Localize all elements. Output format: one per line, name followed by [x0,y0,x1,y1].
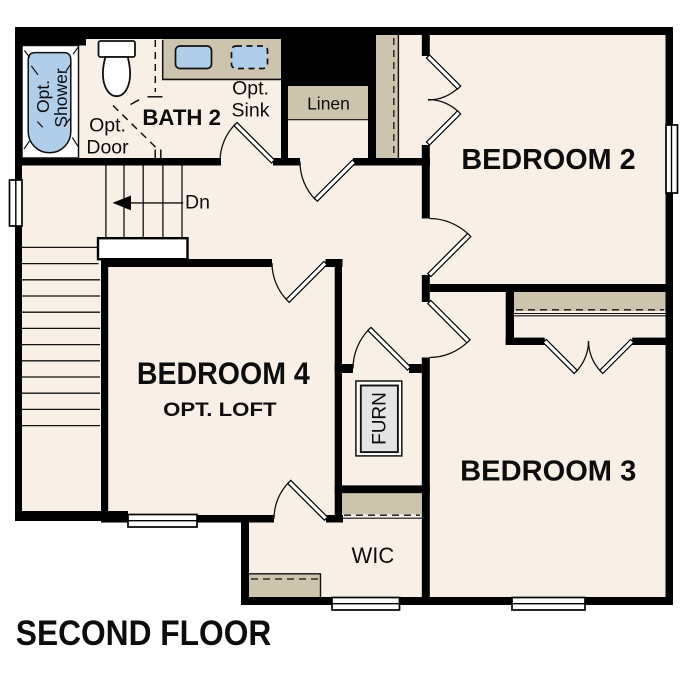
svg-text:Shower: Shower [51,68,71,128]
svg-text:FURN: FURN [370,392,391,445]
svg-text:BEDROOM 3: BEDROOM 3 [460,456,636,488]
svg-text:WIC: WIC [352,543,395,568]
svg-text:Dn: Dn [185,192,210,214]
svg-text:Sink: Sink [232,100,270,122]
svg-text:Opt.: Opt. [89,114,126,136]
svg-text:Opt.: Opt. [33,80,53,113]
svg-text:Opt.: Opt. [232,77,269,99]
svg-text:Door: Door [86,137,129,159]
svg-text:OPT. LOFT: OPT. LOFT [163,399,277,421]
svg-text:BATH 2: BATH 2 [142,105,221,130]
svg-text:SECOND FLOOR: SECOND FLOOR [16,613,271,653]
svg-text:Linen: Linen [307,94,350,114]
svg-text:BEDROOM 4: BEDROOM 4 [137,355,310,391]
svg-text:BEDROOM 2: BEDROOM 2 [461,144,635,176]
